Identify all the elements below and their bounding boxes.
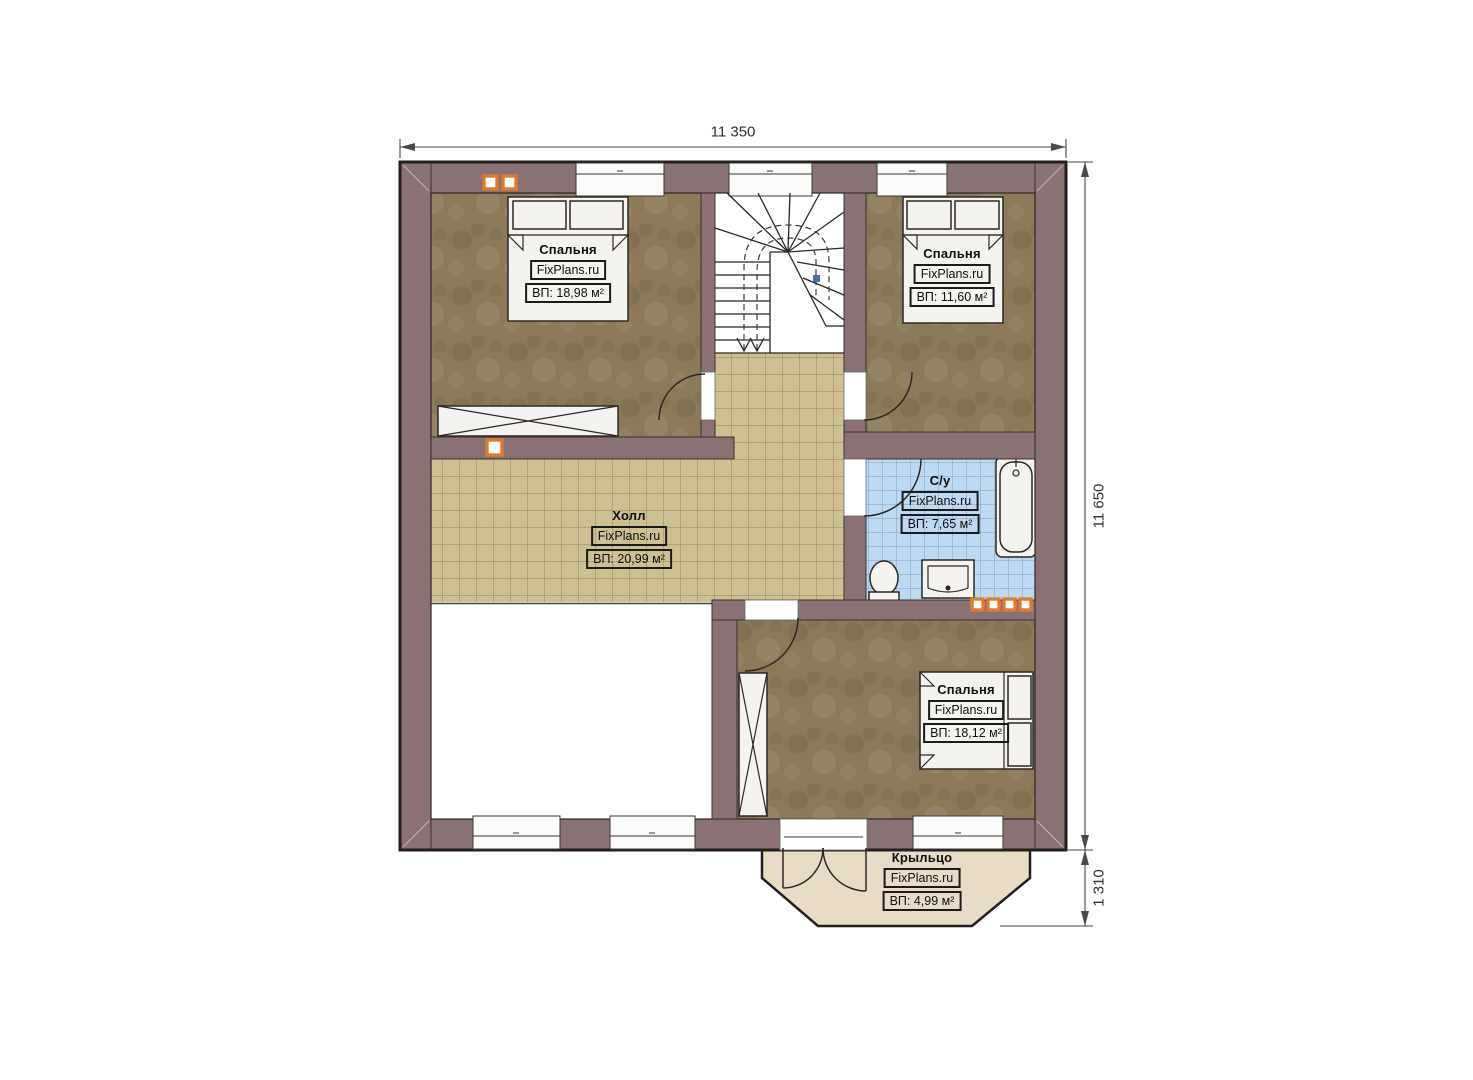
room-name: Холл — [586, 508, 672, 523]
room-label-hall: Холл FixPlans.ru ВП: 20,99 м² — [586, 508, 672, 569]
toilet-icon — [869, 561, 899, 605]
window-icon — [576, 163, 664, 196]
watermark-box: FixPlans.ru — [591, 526, 668, 546]
watermark-box: FixPlans.ru — [928, 700, 1005, 720]
dimension-top — [400, 139, 1066, 158]
vent-marker — [988, 599, 999, 610]
area-box: ВП: 20,99 м² — [586, 549, 672, 569]
vent-marker — [1020, 599, 1031, 610]
area-box: ВП: 7,65 м² — [901, 514, 980, 534]
room-label-bedroom-2: Спальня FixPlans.ru ВП: 11,60 м² — [910, 246, 995, 307]
room-label-porch: Крыльцо FixPlans.ru ВП: 4,99 м² — [883, 850, 962, 911]
sink-icon — [922, 560, 974, 598]
room-name: Спальня — [525, 242, 611, 257]
area-box: ВП: 11,60 м² — [910, 287, 995, 307]
vent-marker — [503, 176, 516, 189]
wardrobe-icon — [739, 673, 767, 816]
stair-node — [813, 275, 820, 282]
wardrobe-icon — [438, 406, 618, 436]
room-name: Крыльцо — [883, 850, 962, 865]
watermark-box: FixPlans.ru — [914, 264, 991, 284]
watermark-box: FixPlans.ru — [884, 868, 961, 888]
floor-plan-drawing — [0, 0, 1473, 1080]
room-label-bathroom: С/у FixPlans.ru ВП: 7,65 м² — [901, 473, 980, 534]
area-box: ВП: 18,12 м² — [923, 723, 1009, 743]
window-icon — [913, 816, 1003, 849]
floor-stairwell — [715, 193, 844, 353]
window-icon — [729, 163, 812, 196]
dimension-label-top: 11 350 — [711, 124, 756, 141]
bathtub-icon — [996, 457, 1036, 557]
room-name: Спальня — [923, 682, 1009, 697]
watermark-box: FixPlans.ru — [902, 491, 979, 511]
vent-marker — [972, 599, 983, 610]
room-name: С/у — [901, 473, 980, 488]
area-box: ВП: 4,99 м² — [883, 891, 962, 911]
window-icon — [610, 816, 695, 849]
room-name: Спальня — [910, 246, 995, 261]
floor-open-room — [431, 604, 712, 819]
floor-plan-page: Спальня FixPlans.ru ВП: 18,98 м² Спальня… — [0, 0, 1473, 1080]
room-label-bedroom-1: Спальня FixPlans.ru ВП: 18,98 м² — [525, 242, 611, 303]
vent-marker — [1004, 599, 1015, 610]
dimension-label-right: 11 650 — [1091, 484, 1108, 529]
dimension-label-porch: 1 310 — [1091, 869, 1108, 907]
area-box: ВП: 18,98 м² — [525, 283, 611, 303]
room-label-bedroom-3: Спальня FixPlans.ru ВП: 18,12 м² — [923, 682, 1009, 743]
watermark-box: FixPlans.ru — [530, 260, 607, 280]
vent-marker — [484, 176, 497, 189]
window-icon — [877, 163, 947, 196]
dimension-right — [1068, 162, 1093, 850]
window-icon — [473, 816, 560, 849]
vent-marker — [487, 440, 502, 455]
